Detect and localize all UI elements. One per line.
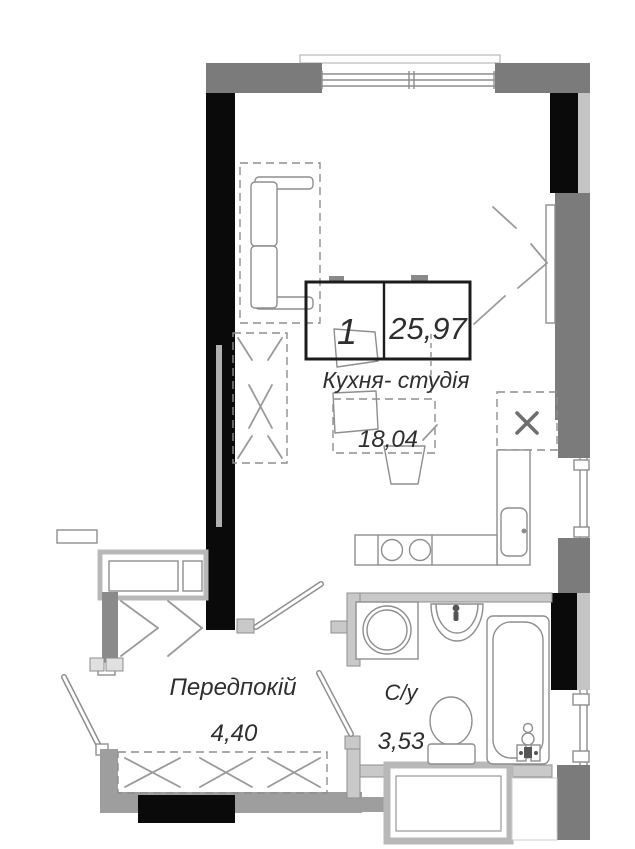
kitchen <box>355 392 557 565</box>
sliding-wardrobe <box>474 205 555 324</box>
toilet <box>428 697 475 764</box>
wall-hall-bottom-black <box>138 795 235 823</box>
fridge-space <box>497 392 557 450</box>
wall-right-black-bottom <box>551 593 577 690</box>
window-handle <box>573 694 589 705</box>
balcony-slab <box>300 55 500 63</box>
wall-right-mid <box>555 193 590 420</box>
right-window-upper <box>574 458 589 538</box>
wall-hall-left-strip <box>102 592 118 669</box>
wall-top-right <box>495 63 590 93</box>
unit-number: 1 <box>337 311 357 352</box>
toilet-tank <box>428 744 475 764</box>
shaft-cell <box>183 561 202 591</box>
floor-plan-page: 1 25,97 Кухня- студія 18,04 Передпокій 4… <box>0 0 635 849</box>
wall-bath-top <box>347 593 552 602</box>
wall-right-outer-strip-bottom <box>577 593 590 690</box>
kitchen-name-label: Кухня- студія <box>322 367 469 393</box>
wall-hall-left <box>100 749 118 795</box>
studio-wardrobe <box>233 333 287 463</box>
hallway-area-label: 4,40 <box>211 720 258 747</box>
right-window-lower <box>573 690 589 765</box>
door-post <box>345 736 360 749</box>
floor-plan-drawing: 1 25,97 Кухня- студія 18,04 Передпокій 4… <box>0 0 635 849</box>
bathroom-area-label: 3,53 <box>378 728 425 755</box>
wall-right-black-top <box>550 93 578 193</box>
wall-top-left <box>206 63 322 93</box>
unit-total-area: 25,97 <box>388 311 468 346</box>
door-post <box>106 658 123 671</box>
wardrobe-panel <box>546 205 555 323</box>
shaft-cell <box>109 561 178 591</box>
hall-closet-x <box>121 601 202 656</box>
studio-door <box>237 584 321 633</box>
sofa <box>240 163 320 323</box>
wall-left-niche <box>216 345 222 527</box>
wall-right-outer-strip-top <box>577 93 590 193</box>
washing-machine <box>356 602 418 659</box>
x-mark-icon <box>517 413 537 433</box>
wall-bath-stub <box>331 621 347 633</box>
kitchen-area-label: 18,04 <box>358 426 418 453</box>
window-handle <box>573 751 589 762</box>
wall-right-above-window <box>558 420 590 458</box>
neighbor-wall-stub <box>57 530 97 543</box>
faucet-icon <box>522 529 527 534</box>
faucet-icon <box>453 605 460 612</box>
unit-label[interactable]: 1 25,97 <box>306 275 470 359</box>
bathtub <box>487 616 549 764</box>
hallway-name-label: Передпокій <box>170 674 297 701</box>
top-window <box>322 71 495 89</box>
door-post <box>237 619 254 633</box>
kitchen-counter-horizontal <box>355 535 497 565</box>
window-handle <box>574 527 589 537</box>
wall-hall-bottom-right <box>330 797 390 812</box>
wall-bath-left-lower <box>347 749 360 798</box>
hall-wardrobe <box>118 752 327 793</box>
wall-right-bottom-block <box>557 765 590 840</box>
bottom-gap <box>512 778 557 840</box>
bathroom-name-label: С/у <box>385 680 420 705</box>
bathroom-sink <box>431 604 483 641</box>
window-handle <box>574 460 589 470</box>
wall-right-below-window <box>558 538 590 593</box>
door-post <box>90 658 104 671</box>
